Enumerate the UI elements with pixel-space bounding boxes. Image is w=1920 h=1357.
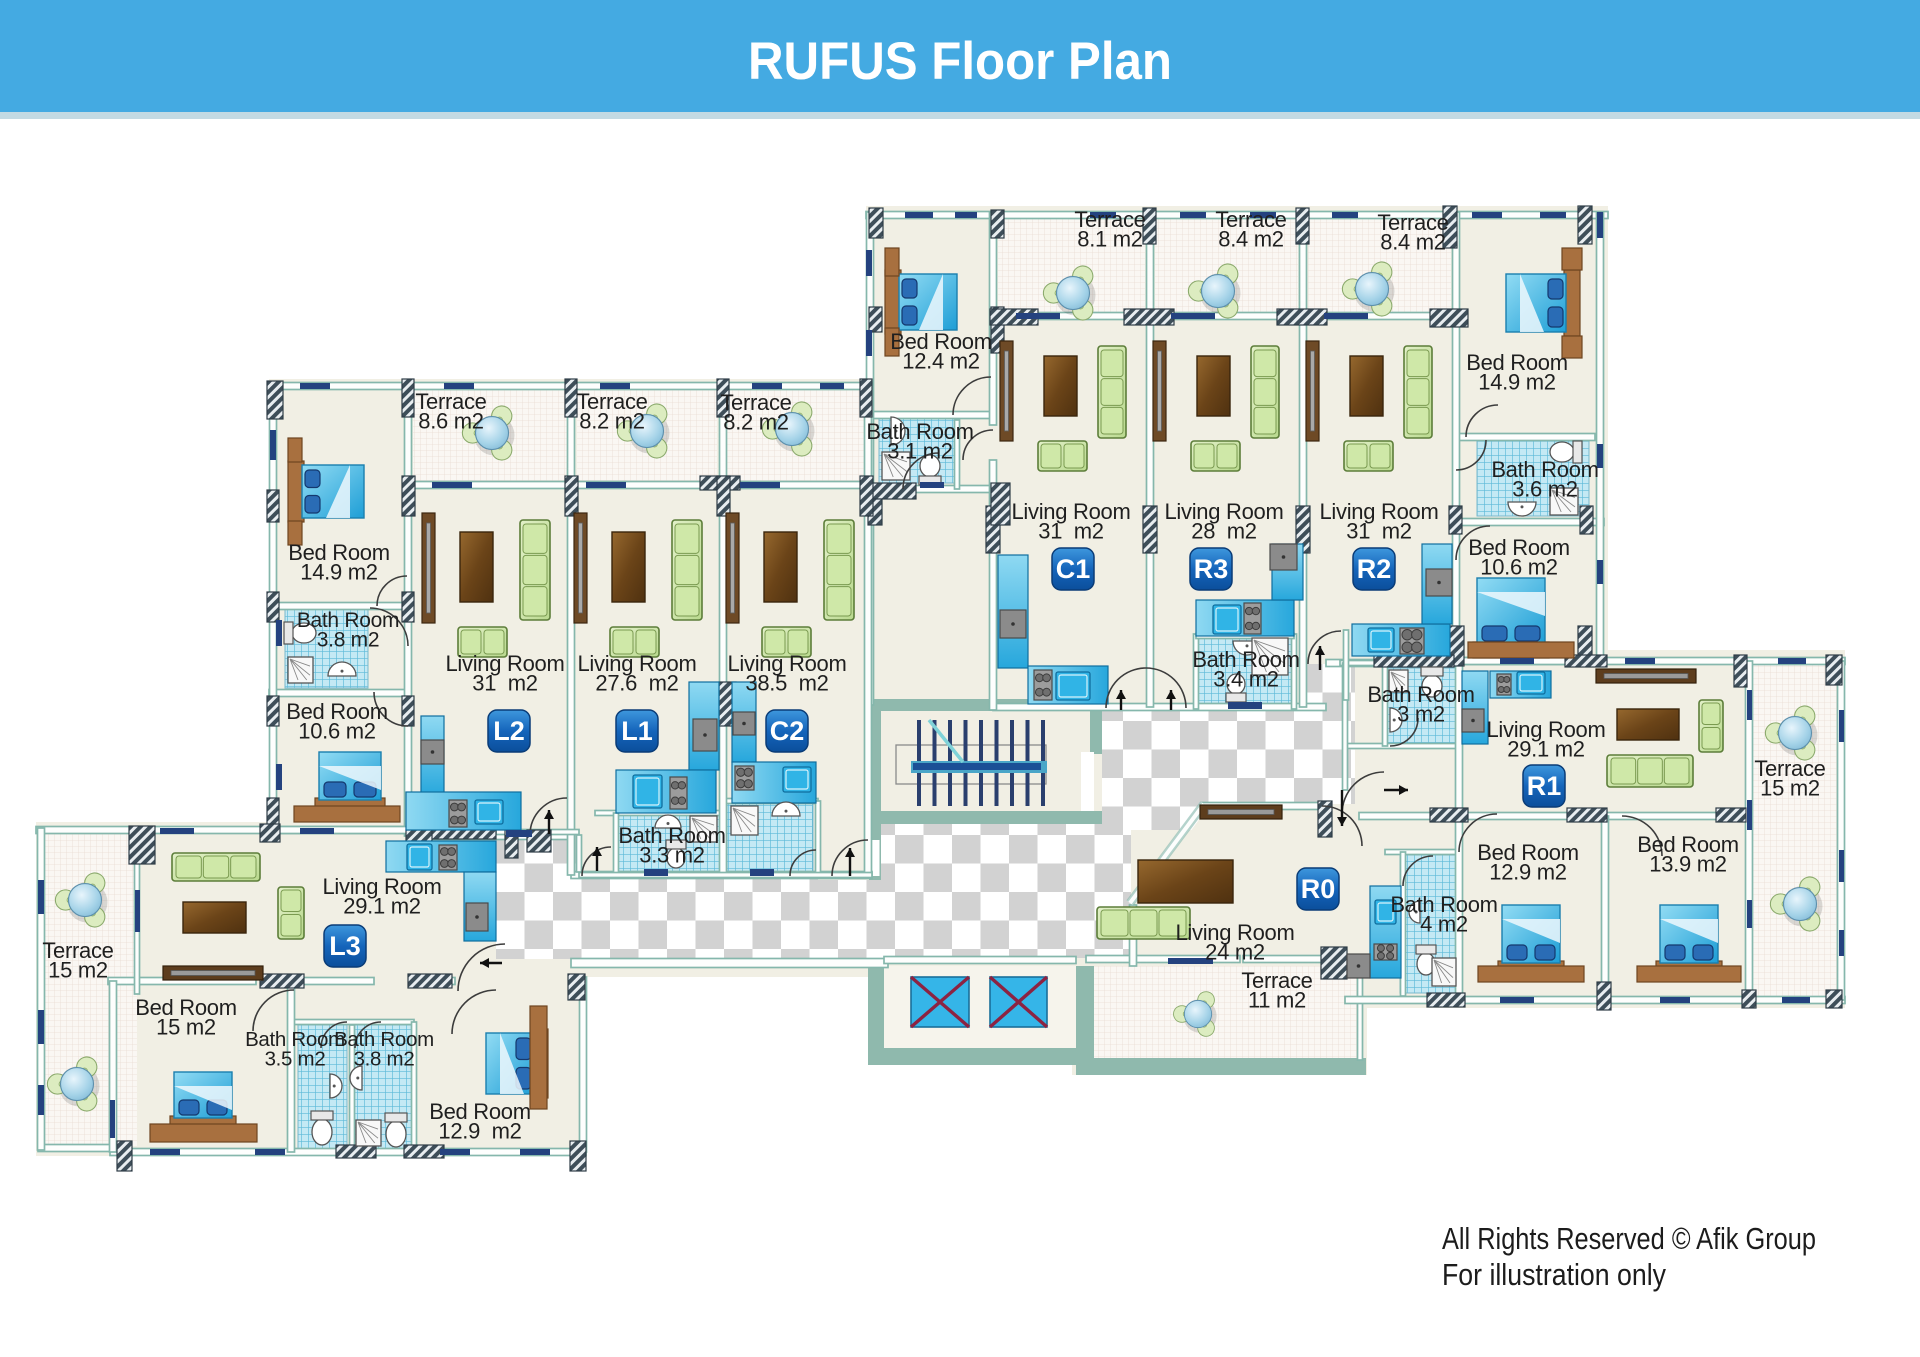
svg-text:4 m2: 4 m2 — [1420, 912, 1468, 937]
svg-text:L1: L1 — [621, 716, 653, 746]
svg-text:For illustration only: For illustration only — [1442, 1258, 1667, 1292]
svg-text:15 m2: 15 m2 — [48, 958, 108, 983]
svg-text:27.6 m2: 27.6 m2 — [595, 671, 678, 696]
svg-text:L3: L3 — [329, 931, 361, 961]
svg-text:14.9 m2: 14.9 m2 — [300, 560, 377, 585]
svg-text:3.8 m2: 3.8 m2 — [354, 1048, 415, 1071]
svg-text:10.6 m2: 10.6 m2 — [298, 719, 375, 744]
svg-text:C1: C1 — [1056, 554, 1091, 584]
svg-text:11 m2: 11 m2 — [1248, 988, 1306, 1013]
svg-text:8.6 m2: 8.6 m2 — [418, 409, 484, 434]
svg-text:3.6 m2: 3.6 m2 — [1512, 477, 1578, 502]
svg-text:3 m2: 3 m2 — [1397, 702, 1445, 727]
svg-text:R0: R0 — [1301, 874, 1336, 904]
svg-text:RUFUS Floor Plan: RUFUS Floor Plan — [748, 32, 1172, 91]
svg-text:3.3 m2: 3.3 m2 — [639, 843, 705, 868]
svg-text:31 m2: 31 m2 — [1346, 519, 1412, 544]
svg-text:31 m2: 31 m2 — [472, 671, 538, 696]
svg-text:3.1 m2: 3.1 m2 — [887, 439, 953, 464]
svg-text:8.1 m2: 8.1 m2 — [1077, 227, 1143, 252]
svg-text:R3: R3 — [1194, 554, 1229, 584]
svg-text:R2: R2 — [1357, 554, 1392, 584]
svg-text:C2: C2 — [770, 716, 805, 746]
svg-text:13.9 m2: 13.9 m2 — [1649, 852, 1726, 877]
svg-text:3.5 m2: 3.5 m2 — [265, 1048, 326, 1071]
svg-text:12.9 m2: 12.9 m2 — [438, 1119, 521, 1144]
svg-text:31 m2: 31 m2 — [1038, 519, 1104, 544]
svg-text:12.4 m2: 12.4 m2 — [902, 349, 979, 374]
svg-text:28 m2: 28 m2 — [1191, 519, 1257, 544]
svg-text:10.6 m2: 10.6 m2 — [1480, 555, 1557, 580]
svg-text:8.2 m2: 8.2 m2 — [723, 410, 789, 435]
svg-text:8.4 m2: 8.4 m2 — [1218, 227, 1284, 252]
svg-text:24 m2: 24 m2 — [1205, 940, 1265, 965]
svg-text:8.2 m2: 8.2 m2 — [579, 409, 645, 434]
svg-text:29.1 m2: 29.1 m2 — [1507, 737, 1584, 762]
svg-text:29.1 m2: 29.1 m2 — [343, 894, 420, 919]
svg-text:L2: L2 — [493, 716, 525, 746]
svg-text:38.5 m2: 38.5 m2 — [745, 671, 828, 696]
svg-text:8.4 m2: 8.4 m2 — [1380, 230, 1446, 255]
svg-text:3.4 m2: 3.4 m2 — [1213, 667, 1279, 692]
svg-text:15 m2: 15 m2 — [156, 1015, 216, 1040]
svg-text:15 m2: 15 m2 — [1760, 776, 1820, 801]
svg-text:All Rights Reserved © Afik Gro: All Rights Reserved © Afik Group — [1442, 1222, 1816, 1256]
svg-text:3.8 m2: 3.8 m2 — [317, 629, 379, 652]
svg-text:12.9 m2: 12.9 m2 — [1489, 860, 1566, 885]
svg-text:R1: R1 — [1527, 771, 1562, 801]
svg-text:14.9 m2: 14.9 m2 — [1478, 370, 1555, 395]
